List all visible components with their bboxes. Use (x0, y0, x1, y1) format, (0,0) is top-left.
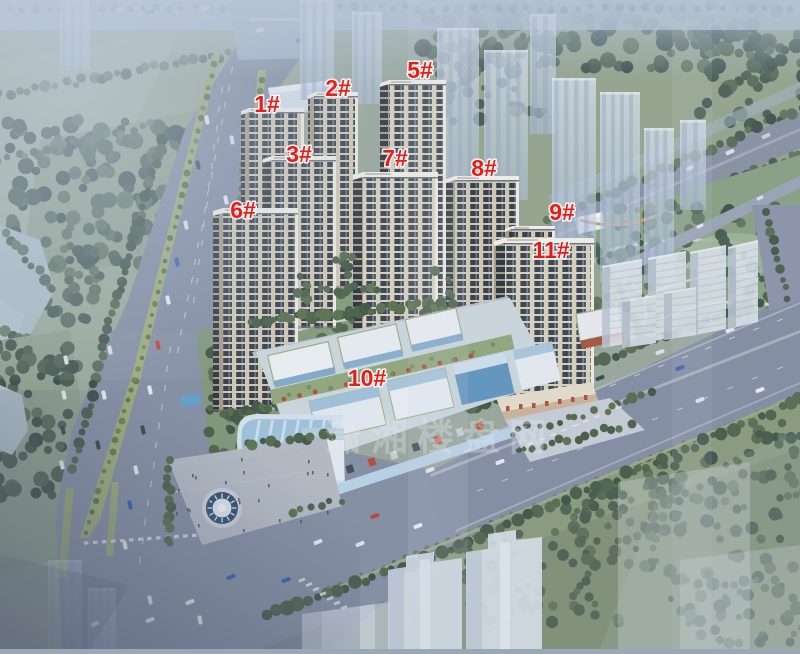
svg-text:3#: 3# (286, 141, 312, 167)
svg-text:11#: 11# (532, 237, 569, 263)
svg-text:6#: 6# (230, 197, 256, 223)
svg-text:7#: 7# (382, 145, 408, 171)
svg-text:10#: 10# (348, 365, 387, 391)
svg-text:潇湘楼盘网: 潇湘楼盘网 (325, 417, 555, 458)
svg-text:2#: 2# (325, 75, 351, 101)
svg-text:9#: 9# (549, 199, 575, 225)
svg-text:5#: 5# (407, 57, 433, 83)
svg-text:1#: 1# (254, 91, 280, 117)
svg-text:8#: 8# (471, 155, 497, 181)
